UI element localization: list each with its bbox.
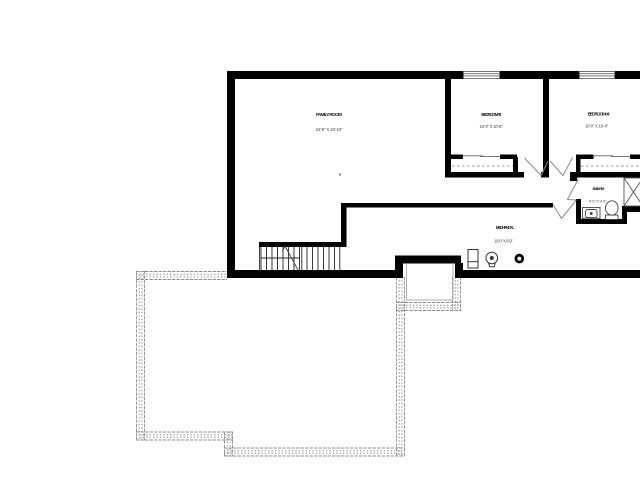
svg-text:10'-0" X 9'-9": 10'-0" X 9'-9" <box>494 238 513 243</box>
svg-text:10'-2" X 10'-8": 10'-2" X 10'-8" <box>480 124 503 129</box>
svg-text:BEDROOM #3: BEDROOM #3 <box>481 112 501 117</box>
svg-text:5'-0" X 9'-0": 5'-0" X 9'-0" <box>589 198 607 203</box>
svg-text:MECHANICAL: MECHANICAL <box>496 225 515 230</box>
svg-text:24'-8" X 16'-10": 24'-8" X 16'-10" <box>316 127 343 132</box>
svg-text:10'-0" X 10'-4": 10'-0" X 10'-4" <box>585 124 609 129</box>
svg-text:BATHRM: BATHRM <box>593 186 606 191</box>
svg-text:FAMILY ROOM: FAMILY ROOM <box>316 112 342 118</box>
svg-text:BEDROOM #4: BEDROOM #4 <box>588 111 610 116</box>
